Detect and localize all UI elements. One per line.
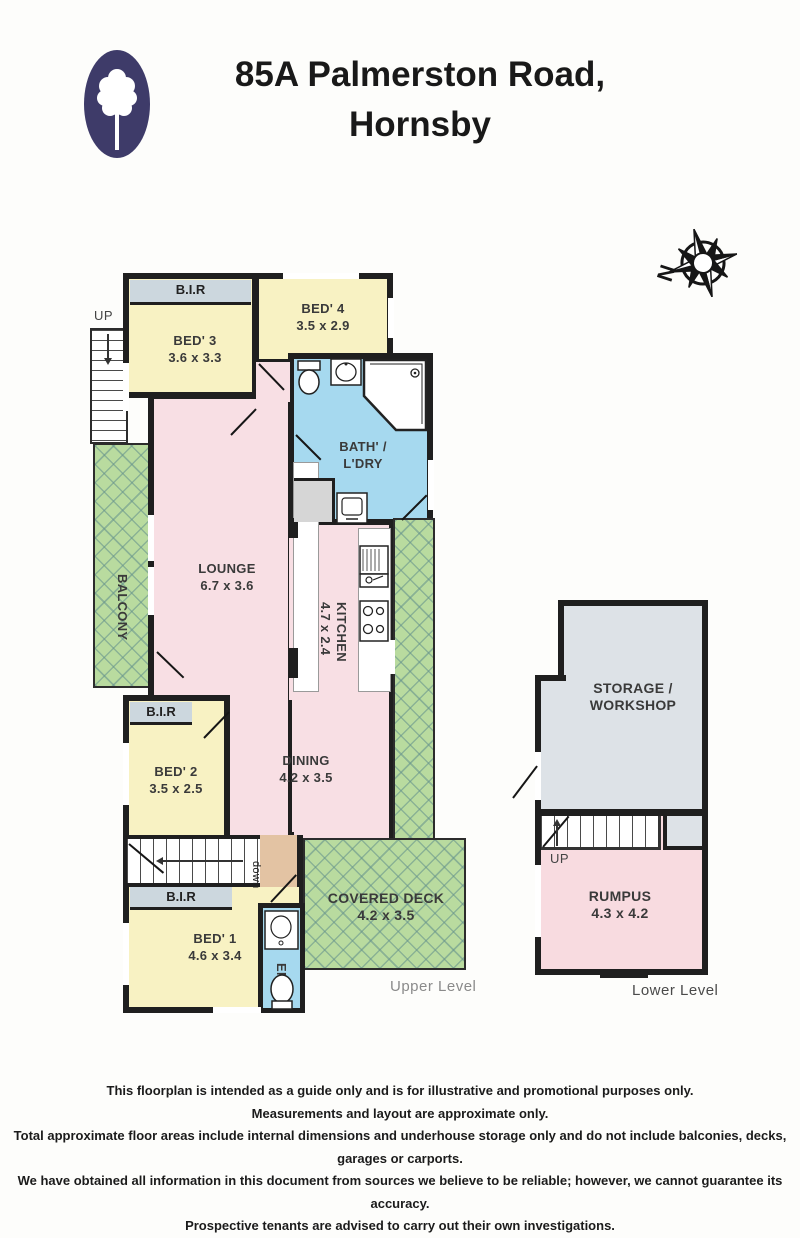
- dining-label: DINING 4.2 x 3.5: [256, 752, 356, 786]
- bed1-label: BED' 1 4.6 x 3.4: [165, 930, 265, 964]
- bed1-dims: 4.6 x 3.4: [165, 947, 265, 964]
- storage-merge-patch: [556, 681, 568, 809]
- disclaimer-line: Prospective tenants are advised to carry…: [0, 1215, 800, 1238]
- stairs-arrow-line: [107, 334, 109, 360]
- window: [123, 363, 129, 411]
- bed4-name: BED' 4: [275, 300, 371, 317]
- side-deck-strip: [393, 518, 435, 843]
- covered-deck-label: COVERED DECK 4.2 x 3.5: [318, 890, 454, 924]
- bed3-bir-band: B.I.R: [130, 280, 251, 305]
- lower-stairs-arrow-up-icon: [553, 819, 561, 826]
- lower-stairs-arrow-line: [556, 824, 558, 846]
- bath-alcove: [294, 478, 335, 522]
- storage-label: STORAGE / WORKSHOP: [570, 680, 696, 714]
- bed3-label: BED' 3 3.6 x 3.3: [150, 332, 240, 366]
- window: [148, 567, 154, 615]
- kitchen-sink-icon: [359, 545, 389, 589]
- bed3-name: BED' 3: [150, 332, 240, 349]
- lower-stairs-up-label: UP: [550, 851, 569, 866]
- shower-icon: [362, 358, 428, 432]
- laundry-tub-icon: [336, 492, 368, 524]
- compass-icon: N: [656, 224, 742, 302]
- lower-level-label: Lower Level: [632, 982, 718, 999]
- kitchen-wall-stub-bottom: [288, 648, 298, 678]
- window: [283, 273, 359, 279]
- bath-name1: BATH' /: [318, 438, 408, 455]
- window: [213, 1007, 261, 1013]
- storage-door-gap: [535, 752, 541, 800]
- rumpus-wall-step: [600, 969, 648, 978]
- cooktop-icon: [359, 600, 389, 642]
- rumpus-window: [535, 865, 541, 937]
- ensuite-basin-icon: [264, 910, 299, 950]
- disclaimer-line: Total approximate floor areas include in…: [0, 1125, 800, 1170]
- bed4-dims: 3.5 x 2.9: [275, 317, 371, 334]
- bed2-bir-band: B.I.R: [130, 702, 192, 725]
- bed1-name: BED' 1: [165, 930, 265, 947]
- dining-dims: 4.2 x 3.5: [256, 769, 356, 786]
- dining-name: DINING: [256, 752, 356, 769]
- disclaimer-line: Measurements and layout are approximate …: [0, 1103, 800, 1126]
- lounge-label: LOUNGE 6.7 x 3.6: [177, 560, 277, 594]
- compass-north-label: N: [656, 262, 680, 285]
- toilet-icon: [295, 360, 323, 396]
- deck-dims: 4.2 x 3.5: [318, 907, 454, 924]
- bath-label: BATH' / L'DRY: [318, 438, 408, 472]
- title-line1: 85A Palmerston Road,: [170, 50, 670, 100]
- rumpus-name: RUMPUS: [560, 888, 680, 905]
- stairs-down-arrow-icon: [156, 857, 163, 865]
- rumpus-dims: 4.3 x 4.2: [560, 905, 680, 922]
- bed3-dims: 3.6 x 3.3: [150, 349, 240, 366]
- window: [428, 460, 434, 510]
- rumpus-label: RUMPUS 4.3 x 4.2: [560, 888, 680, 922]
- disclaimer-line: This floorplan is intended as a guide on…: [0, 1080, 800, 1103]
- window: [388, 298, 394, 338]
- storage-name2: WORKSHOP: [570, 697, 696, 714]
- disclaimer-line: We have obtained all information in this…: [0, 1170, 800, 1215]
- bed2-dims: 3.5 x 2.5: [132, 780, 220, 797]
- disclaimer: This floorplan is intended as a guide on…: [0, 1080, 800, 1238]
- lounge-name: LOUNGE: [177, 560, 277, 577]
- window: [123, 743, 129, 805]
- deck-name: COVERED DECK: [318, 890, 454, 907]
- landing-opening-patch: [264, 837, 297, 847]
- storage-name1: STORAGE /: [570, 680, 696, 697]
- bath-name2: L'DRY: [318, 455, 408, 472]
- lounge-dims: 6.7 x 3.6: [177, 577, 277, 594]
- stairs-arrow-down-icon: [104, 358, 112, 365]
- window: [123, 923, 129, 985]
- title-line2: Hornsby: [170, 100, 670, 150]
- ensuite-toilet-icon: [267, 972, 297, 1010]
- bed1-bir-band: B.I.R: [130, 887, 232, 910]
- lower-grey-nook: [663, 816, 702, 850]
- bed2-label: BED' 2 3.5 x 2.5: [132, 763, 220, 797]
- upper-level-label: Upper Level: [390, 978, 476, 995]
- bath-basin-icon: [330, 358, 362, 386]
- window: [148, 515, 154, 561]
- stairs-up-label: UP: [94, 308, 113, 323]
- bed2-name: BED' 2: [132, 763, 220, 780]
- balcony: [93, 443, 155, 688]
- agency-logo-tree-icon: [82, 48, 154, 162]
- stairs-down-arrow-line: [163, 860, 243, 862]
- window: [389, 640, 395, 674]
- page-title: 85A Palmerston Road, Hornsby: [170, 50, 670, 150]
- bed4-label: BED' 4 3.5 x 2.9: [275, 300, 371, 334]
